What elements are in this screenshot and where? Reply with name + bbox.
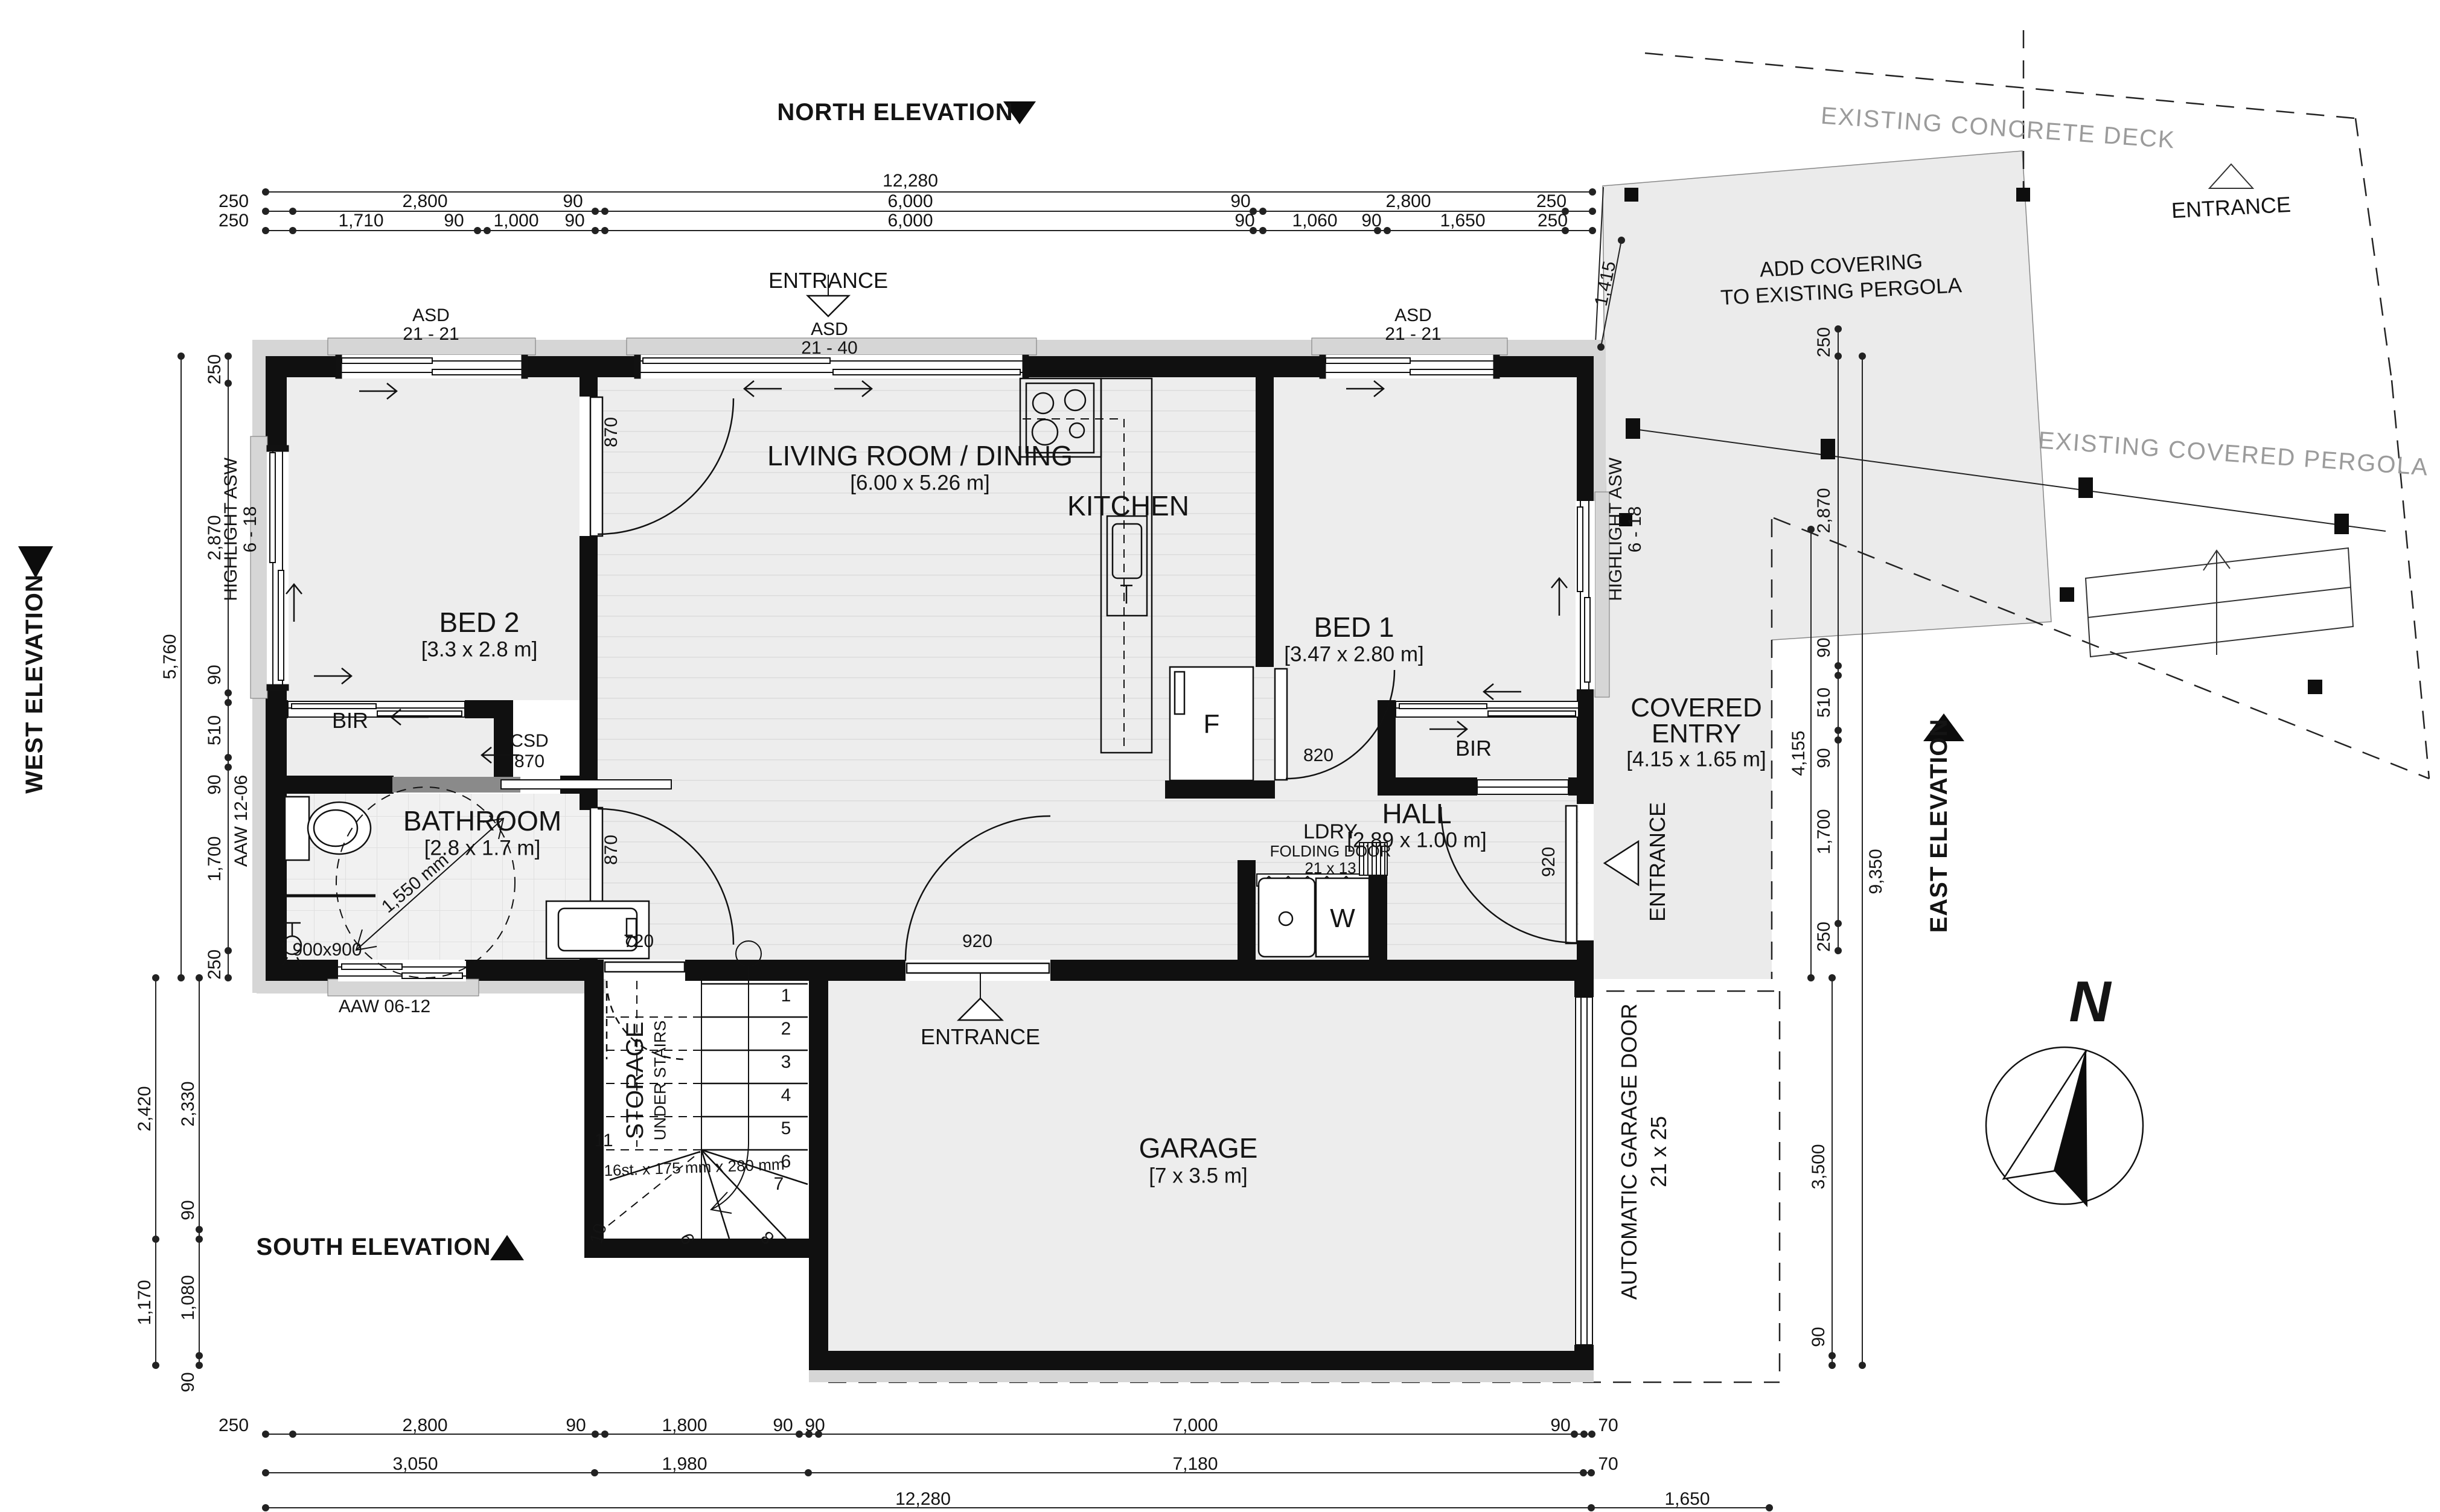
dim: 90 [773, 1417, 793, 1435]
deck-entrance-path [2086, 164, 2353, 657]
washer-label: W [1330, 905, 1355, 932]
living-room-label: LIVING ROOM / DINING [767, 442, 1073, 470]
compass-north-letter: N [2069, 973, 2110, 1031]
highlight-asw-east-size: 6 - 18 [1626, 506, 1644, 553]
dim: 250 [1815, 327, 1833, 357]
dim: 1,080 [179, 1275, 197, 1320]
dim: 250 [219, 193, 249, 211]
garage-size: [7 x 3.5 m] [1149, 1166, 1247, 1187]
south-elevation-label: SOUTH ELEVATION [256, 1235, 491, 1259]
ldry-size-label: 21 x 13 [1305, 860, 1356, 876]
dim: 90 [1815, 748, 1833, 768]
covered-entry-size: [4.15 x 1.65 m] [1626, 749, 1766, 770]
dim-9350: 9,350 [1867, 849, 1885, 894]
dim: 1,710 [338, 212, 383, 230]
dim-left-overall: 5,760 [161, 634, 179, 679]
dim: 1,170 [136, 1280, 154, 1325]
dim: 2,800 [1385, 193, 1431, 211]
storage-label-line1: STORAGE [623, 1022, 647, 1140]
dim: 6,000 [887, 193, 933, 211]
covered-entry-line2: ENTRY [1652, 721, 1741, 747]
dim: 90 [1361, 212, 1381, 230]
dim: 70 [1598, 1455, 1618, 1473]
aaw-south-label: AAW 06-12 [339, 998, 430, 1016]
dim-3500: 3,500 [1810, 1144, 1828, 1189]
dim: 250 [206, 354, 224, 384]
dim: 90 [805, 1417, 825, 1435]
dim: 90 [563, 193, 583, 211]
storage-label-line2: UNDER STAIRS [653, 1020, 669, 1140]
dim: 90 [1550, 1417, 1570, 1435]
fridge-label: F [1204, 711, 1220, 738]
asd-mid-label: ASD [811, 321, 848, 339]
asd-right-size: 21 - 21 [1385, 325, 1441, 343]
bathroom-door-size: 870 [602, 835, 621, 865]
garage-door-label: AUTOMATIC GARAGE DOOR [1618, 1004, 1640, 1300]
west-elevation-label: WEST ELEVATION [22, 574, 46, 794]
floor-plan-page: NORTH ELEVATION WEST ELEVATION SOUTH ELE… [0, 0, 2440, 1512]
stair-num-2: 2 [781, 1020, 791, 1038]
garage-label: GARAGE [1139, 1134, 1258, 1162]
bed1-size: [3.47 x 2.80 m] [1284, 644, 1424, 665]
bathroom-label: BATHROOM [403, 807, 561, 835]
asd-left-size: 21 - 21 [403, 325, 459, 343]
dim: 90 [444, 212, 464, 230]
asd-right-label: ASD [1394, 307, 1432, 325]
dim-top-overall: 12,280 [883, 172, 938, 190]
garage-entry-door-size: 920 [962, 933, 992, 951]
highlight-asw-east-label: HIGHLIGHT ASW [1607, 458, 1625, 601]
bed2-label: BED 2 [439, 608, 520, 636]
dim: 250 [1815, 922, 1833, 952]
storage-door-size: 720 [624, 933, 654, 951]
asd-left-label: ASD [412, 307, 450, 325]
stair-num-3: 3 [781, 1053, 791, 1071]
hall-entrance-label: ENTRANCE [1647, 802, 1669, 922]
dim: 6,000 [887, 212, 933, 230]
north-elevation-label: NORTH ELEVATION [777, 100, 1013, 124]
ldry-folding-door-label: FOLDING DOOR [1270, 843, 1391, 859]
dim: 12,280 [895, 1490, 951, 1508]
garage-door-size: 21 x 25 [1648, 1116, 1670, 1187]
dim: 90 [179, 1372, 197, 1392]
stair-num-6: 6 [781, 1153, 791, 1171]
entry-door-size: 920 [1540, 847, 1558, 877]
dim: 1,650 [1440, 212, 1485, 230]
stair-num-11: 11 [594, 1132, 613, 1150]
dim: 90 [179, 1200, 197, 1220]
north-entrance-label: ENTRANCE [768, 270, 888, 292]
stair-num-5: 5 [781, 1120, 791, 1138]
dim: 2,870 [1815, 488, 1833, 533]
dim: 2,800 [402, 193, 447, 211]
dim-4155: 4,155 [1790, 730, 1808, 776]
north-arrow-compass [1986, 1047, 2143, 1207]
dim: 2,330 [179, 1081, 197, 1126]
kitchen-label: KITCHEN [1067, 492, 1189, 520]
dim: 510 [1815, 687, 1833, 718]
csd-size: 870 [514, 753, 545, 771]
deck-entrance-label: ENTRANCE [2171, 194, 2291, 222]
dim: 250 [1538, 212, 1568, 230]
highlight-asw-west-size: 6 - 18 [241, 506, 260, 553]
stair-num-4: 4 [781, 1086, 791, 1105]
covered-entry-line1: COVERED [1630, 695, 1762, 721]
dim: 90 [564, 212, 584, 230]
dim: 1,000 [493, 212, 538, 230]
dim: 1,800 [662, 1417, 707, 1435]
garage-entrance-label: ENTRANCE [921, 1026, 1040, 1048]
dim: 250 [219, 212, 249, 230]
bir-bed2-label: BIR [332, 710, 368, 732]
bed2-size: [3.3 x 2.8 m] [421, 639, 538, 660]
dim: 90 [1230, 193, 1250, 211]
bed2-door-size: 870 [602, 417, 621, 447]
ldry-label: LDRY [1303, 821, 1358, 842]
highlight-asw-west-label: HIGHLIGHT ASW [222, 458, 240, 601]
shower-size-label: 900x900 [292, 941, 362, 959]
dim: 90 [206, 774, 224, 794]
dim: 510 [206, 715, 224, 745]
asd-mid-size: 21 - 40 [801, 339, 857, 357]
dim-90-right: 90 [1810, 1327, 1828, 1347]
dim: 250 [1536, 193, 1567, 211]
bed1-label: BED 1 [1314, 613, 1394, 641]
hall-label: HALL [1382, 800, 1451, 828]
dim: 1,700 [1815, 809, 1833, 854]
dim: 70 [1598, 1417, 1618, 1435]
dim: 90 [1234, 212, 1254, 230]
dim: 1,650 [1664, 1490, 1710, 1508]
stair-num-1: 1 [781, 987, 791, 1005]
dim: 250 [219, 1417, 249, 1435]
dim: 1,700 [206, 836, 224, 881]
dim: 2,420 [136, 1086, 154, 1131]
aaw-west-label: AAW 12-06 [232, 775, 251, 867]
dim: 7,180 [1172, 1455, 1218, 1473]
dim: 2,800 [402, 1417, 447, 1435]
stair-num-7: 7 [774, 1175, 784, 1193]
bir-bed1-label: BIR [1455, 738, 1492, 759]
dim: 250 [206, 949, 224, 980]
dim: 90 [566, 1417, 586, 1435]
dim: 1,980 [662, 1455, 707, 1473]
living-room-size: [6.00 x 5.26 m] [850, 473, 990, 494]
dim: 90 [206, 665, 224, 684]
dim: 90 [1815, 637, 1833, 657]
dim: 1,060 [1292, 212, 1337, 230]
east-elevation-label: EAST ELEVATION [1927, 719, 1951, 933]
dim: 2,870 [206, 515, 224, 560]
bed1-door-size: 820 [1303, 747, 1333, 765]
dim: 3,050 [392, 1455, 438, 1473]
csd-label: CSD [510, 732, 548, 750]
dim: 7,000 [1172, 1417, 1218, 1435]
